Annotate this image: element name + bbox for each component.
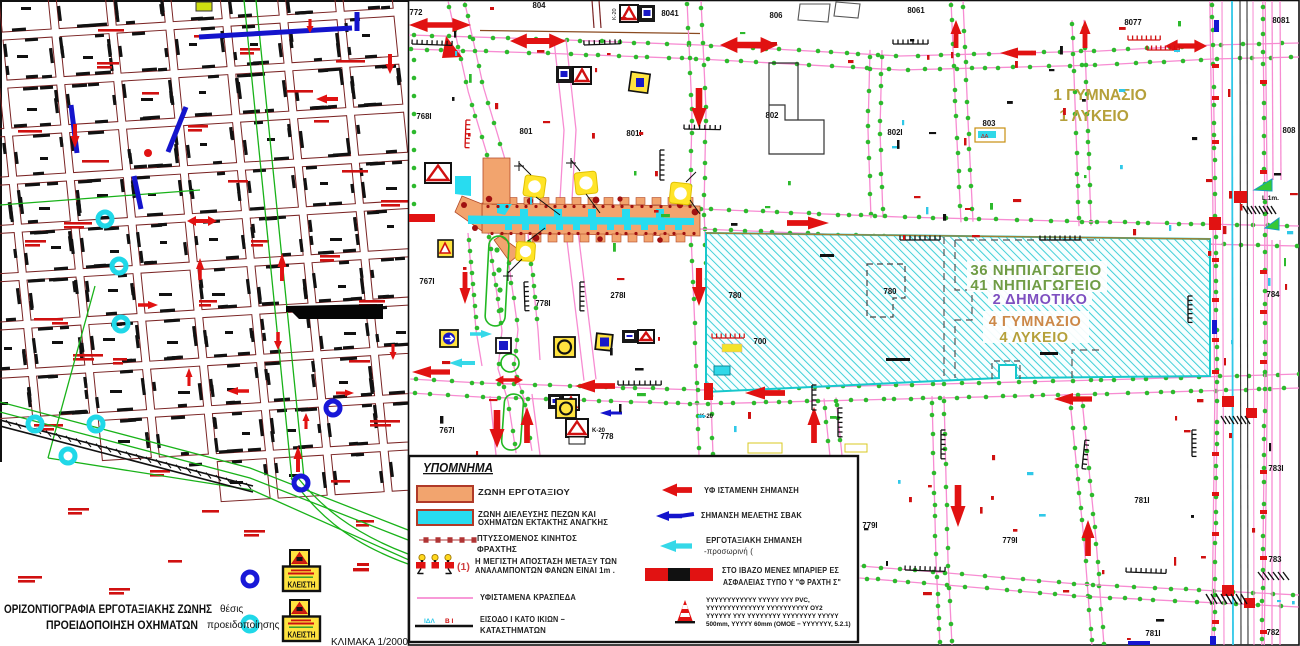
svg-text:ΔΑ: ΔΑ: [981, 134, 989, 140]
svg-text:ΑΣΦΑΛΕΙΑΣ ΤΥΠΟ Υ "Φ ΡΑΧΤΗ Σ": ΑΣΦΑΛΕΙΑΣ ΤΥΠΟ Υ "Φ ΡΑΧΤΗ Σ": [723, 578, 841, 587]
svg-text:ΦΡΑΧΤΗΣ: ΦΡΑΧΤΗΣ: [477, 545, 517, 554]
svg-text:ΚΑΤΑΣΤΗΜΑΤΩΝ: ΚΑΤΑΣΤΗΜΑΤΩΝ: [480, 626, 546, 635]
svg-text:ΟΡΙΖΟΝΤΙΟΓΡΑΦΙΑ ΕΡΓΟΤΑΞΙΑΚΗΣ: ΟΡΙΖΟΝΤΙΟΓΡΑΦΙΑ ΕΡΓΟΤΑΞΙΑΚΗΣ ΖΩΝΗΣ: [4, 604, 212, 616]
svg-text:L.1m.: L.1m.: [1262, 195, 1279, 202]
svg-text:801: 801: [519, 127, 533, 136]
svg-text:778Ι: 778Ι: [535, 299, 550, 308]
svg-text:ΥΥΥΥΥΥΥΥΥΥΥΥ ΥΥΥΥΥ ΥΥΥ PVC,: ΥΥΥΥΥΥΥΥΥΥΥΥ ΥΥΥΥΥ ΥΥΥ PVC,: [706, 597, 810, 604]
svg-text:4 ΛΥΚΕΙΟ: 4 ΛΥΚΕΙΟ: [999, 330, 1068, 346]
svg-text:8061: 8061: [907, 6, 925, 15]
svg-text:780: 780: [728, 291, 742, 300]
svg-text:ΑΝΑΛΑΜΠΟΝΤΩΝ ΦΑΝΩΝ ΕΙΝΑΙ 1m .: ΑΝΑΛΑΜΠΟΝΤΩΝ ΦΑΝΩΝ ΕΙΝΑΙ 1m .: [475, 566, 615, 575]
svg-text:ΚΛΕΙΣΤΗ: ΚΛΕΙΣΤΗ: [288, 581, 316, 590]
svg-text:προειδοποίησης: προειδοποίησης: [207, 619, 280, 631]
svg-text:278Ι: 278Ι: [610, 291, 625, 300]
svg-text:783: 783: [1268, 555, 1282, 564]
svg-text:ΥΥΥΥΥΥ ΥΥΥ ΥΥΥΥΥΥΥΥ ΥΥΥΥΥΥΥ: ΥΥΥΥΥΥ ΥΥΥ ΥΥΥΥΥΥΥΥ ΥΥΥΥΥΥΥΥ ΥΥΥΥΥ: [706, 613, 839, 620]
svg-text:781Ι: 781Ι: [1145, 629, 1160, 638]
svg-text:803: 803: [982, 119, 996, 128]
svg-text:ΚΛΙΜΑΚΑ 1/2000: ΚΛΙΜΑΚΑ 1/2000: [331, 637, 408, 646]
svg-text:(1): (1): [457, 561, 470, 573]
svg-text:802: 802: [765, 111, 779, 120]
svg-text:ΠΤΥΣΣΟΜΕΝΟΣ ΚΙΝΗΤΟΣ: ΠΤΥΣΣΟΜΕΝΟΣ ΚΙΝΗΤΟΣ: [477, 534, 577, 543]
svg-text:700: 700: [753, 337, 767, 346]
svg-text:808: 808: [1282, 126, 1296, 135]
svg-text:781Ι: 781Ι: [1134, 496, 1149, 505]
svg-text:-προσωρινή (: -προσωρινή (: [704, 547, 753, 556]
svg-text:ΖΩΝΗ ΕΡΓΟΤΑΞΙΟΥ: ΖΩΝΗ ΕΡΓΟΤΑΞΙΟΥ: [478, 488, 570, 497]
svg-text:Κ-20: Κ-20: [612, 8, 618, 20]
svg-text:ΣΤΟ ΙΒΑΖΟ ΜΕΝΕΣ ΜΠΑΡΙΕΡ ΕΣ: ΣΤΟ ΙΒΑΖΟ ΜΕΝΕΣ ΜΠΑΡΙΕΡ ΕΣ: [722, 566, 839, 575]
svg-text:782: 782: [1266, 628, 1280, 637]
svg-text:ΕΙΣΟΔΟ Ι ΚΑΤΟ ΙΚΙΩΝ −: ΕΙΣΟΔΟ Ι ΚΑΤΟ ΙΚΙΩΝ −: [480, 615, 565, 624]
svg-text:4 ΓΥΜΝΑΣΙΟ: 4 ΓΥΜΝΑΣΙΟ: [989, 314, 1082, 330]
svg-text:ΕΡΓΟΤΑΞΙΑΚΗ ΣΗΜΑΝΣΗ: ΕΡΓΟΤΑΞΙΑΚΗ ΣΗΜΑΝΣΗ: [706, 536, 802, 545]
svg-text:8041: 8041: [661, 9, 679, 18]
svg-text:ΚΛΕΙΣΤΗ: ΚΛΕΙΣΤΗ: [288, 631, 316, 640]
svg-text:ΠΡΟΕΙΔΟΠΟΙΗΣΗ ΟΧΗΜΑΤΩΝ: ΠΡΟΕΙΔΟΠΟΙΗΣΗ ΟΧΗΜΑΤΩΝ: [46, 620, 198, 632]
svg-text:780: 780: [883, 287, 897, 296]
svg-text:ΟΧΗΜΑΤΩΝ ΕΚΤΑΚΤΗΣ ΑΝΑΓΚΗΣ: ΟΧΗΜΑΤΩΝ ΕΚΤΑΚΤΗΣ ΑΝΑΓΚΗΣ: [478, 518, 608, 527]
svg-text:806: 806: [769, 11, 783, 20]
svg-text:804: 804: [532, 1, 546, 10]
svg-text:768Ι: 768Ι: [416, 112, 431, 121]
svg-text:1 ΓΥΜΝΑΣΙΟ: 1 ΓΥΜΝΑΣΙΟ: [1053, 87, 1147, 104]
svg-text:1 ΛΥΚΕΙΟ: 1 ΛΥΚΕΙΟ: [1059, 108, 1129, 125]
svg-text:767Ι: 767Ι: [439, 426, 454, 435]
svg-text:779Ι: 779Ι: [1002, 536, 1017, 545]
svg-text:8077: 8077: [1124, 18, 1141, 27]
svg-text:ΥΠΟΜΝΗΜΑ: ΥΠΟΜΝΗΜΑ: [423, 460, 493, 475]
svg-text:802Ι: 802Ι: [887, 128, 902, 137]
svg-text:ΥΥΥΥΥΥΥΥΥΥΥΥΥΥ ΥΥΥΥΥΥΥΥΥΥ ΟΥ: ΥΥΥΥΥΥΥΥΥΥΥΥΥΥ ΥΥΥΥΥΥΥΥΥΥ ΟΥ2: [706, 605, 823, 612]
svg-text:ΙΔΛ: ΙΔΛ: [424, 618, 435, 625]
svg-text:500mm, ΥΥΥΥΥ 60mm (ΟΜΟΕ − ΥΥ: 500mm, ΥΥΥΥΥ 60mm (ΟΜΟΕ − ΥΥΥΥΥΥΥ, 5.2.1…: [706, 621, 851, 628]
svg-text:Η ΜΕΓΙΣΤΗ ΑΠΟΣΤΑΣΗ ΜΕΤΑΞΥ ΤΩΝ: Η ΜΕΓΙΣΤΗ ΑΠΟΣΤΑΣΗ ΜΕΤΑΞΥ ΤΩΝ: [475, 557, 617, 566]
svg-text:θέσις: θέσις: [220, 603, 243, 615]
svg-text:784: 784: [1266, 290, 1280, 299]
svg-text:Β Ι: Β Ι: [445, 618, 454, 625]
svg-text:ΣΗΜΑΝΣΗ ΜΕΛΕΤΗΣ ΣΒΑΚ: ΣΗΜΑΝΣΗ ΜΕΛΕΤΗΣ ΣΒΑΚ: [701, 511, 802, 520]
svg-text:8081: 8081: [1272, 16, 1290, 25]
svg-text:767Ι: 767Ι: [419, 277, 434, 286]
svg-text:772: 772: [409, 8, 423, 17]
svg-text:ΥΦ ΙΣΤΑΜΕΝΗ ΣΗΜΑΝΣΗ: ΥΦ ΙΣΤΑΜΕΝΗ ΣΗΜΑΝΣΗ: [704, 486, 799, 495]
svg-text:Κ-20: Κ-20: [592, 428, 606, 434]
svg-text:ΥΦΙΣΤΑΜΕΝΑ ΚΡΑΣΠΕΔΑ: ΥΦΙΣΤΑΜΕΝΑ ΚΡΑΣΠΕΔΑ: [480, 593, 576, 602]
svg-text:783Ι: 783Ι: [1268, 464, 1283, 473]
svg-text:2 ΔΗΜΟΤΙΚΟ: 2 ΔΗΜΟΤΙΚΟ: [993, 292, 1088, 308]
